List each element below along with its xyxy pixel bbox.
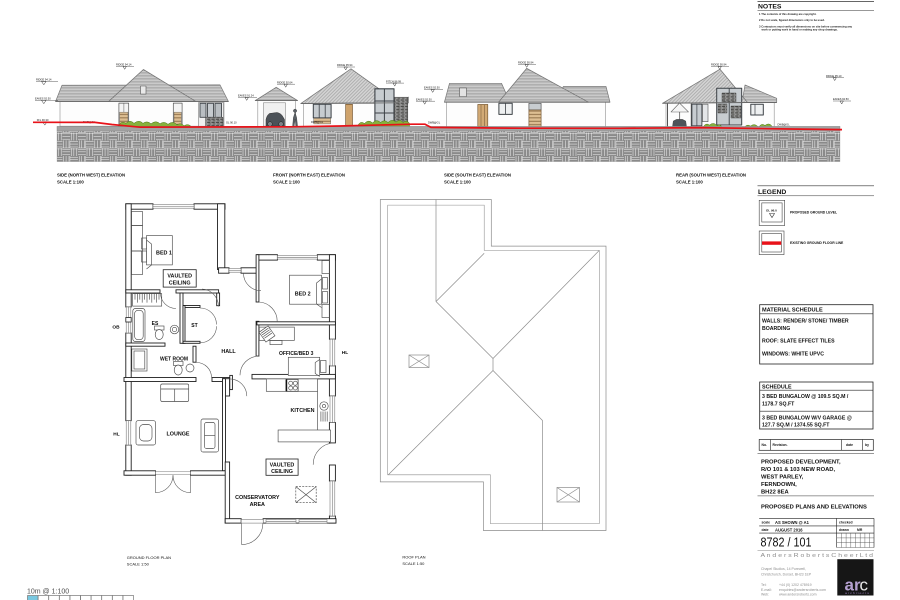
svg-text:KITCHEN: KITCHEN	[291, 408, 315, 414]
svg-text:GROUND FLOOR PLAN: GROUND FLOOR PLAN	[127, 555, 171, 560]
svg-text:DWB@GL: DWB@GL	[778, 122, 791, 126]
svg-text:WEST PARLEY,: WEST PARLEY,	[761, 475, 804, 481]
svg-text:2 Do not scale, figured dimens: 2 Do not scale, figured dimensions only …	[759, 18, 825, 22]
svg-text:3 BED BUNGALOW @ 109.5 SQ.M /: 3 BED BUNGALOW @ 109.5 SQ.M /	[762, 394, 849, 400]
svg-text:ROOF PLAN: ROOF PLAN	[402, 555, 425, 560]
svg-text:SCALE 1:100: SCALE 1:100	[676, 180, 703, 185]
svg-text:OB: OB	[112, 325, 120, 331]
svg-text:EAVES 92.50: EAVES 92.50	[833, 97, 849, 101]
svg-text:EXISTING GROUND FLOOR LINE: EXISTING GROUND FLOOR LINE	[790, 241, 844, 245]
svg-text:CEILING: CEILING	[169, 281, 191, 287]
svg-text:+44 (0) 1202 478919: +44 (0) 1202 478919	[779, 583, 812, 587]
svg-text:AUGUST 2016: AUGUST 2016	[775, 528, 803, 533]
svg-text:RIDGE 95.10: RIDGE 95.10	[826, 74, 842, 78]
svg-text:www.andersroberts.com: www.andersroberts.com	[779, 593, 817, 597]
svg-text:FERNDOWN,: FERNDOWN,	[761, 482, 797, 488]
svg-text:BED 1: BED 1	[156, 250, 172, 256]
svg-text:BH22 8EA: BH22 8EA	[761, 490, 790, 496]
svg-text:work or putting work in hand o: work or putting work in hand or making a…	[761, 28, 839, 32]
svg-text:SCALE 1:100: SCALE 1:100	[273, 180, 300, 185]
svg-text:GL 96.0: GL 96.0	[766, 209, 777, 213]
svg-text:Revision.: Revision.	[773, 443, 788, 447]
svg-text:SIDE (NORTH WEST) ELEVATION: SIDE (NORTH WEST) ELEVATION	[57, 173, 125, 178]
svg-text:Web:: Web:	[761, 593, 769, 597]
svg-text:FRONT (NORTH EAST) ELEVATION: FRONT (NORTH EAST) ELEVATION	[273, 173, 345, 178]
svg-text:RIDGE 94.14: RIDGE 94.14	[36, 78, 52, 82]
svg-text:VAULTED: VAULTED	[167, 274, 192, 280]
svg-text:Tel:: Tel:	[761, 583, 766, 587]
svg-text:No.: No.	[762, 443, 768, 447]
svg-text:LOUNGE: LOUNGE	[166, 432, 189, 438]
svg-text:BED 2: BED 2	[295, 291, 311, 297]
svg-text:PROPOSED GROUND LEVEL: PROPOSED GROUND LEVEL	[790, 210, 837, 214]
svg-text:BOARDING: BOARDING	[762, 326, 790, 332]
svg-text:VAULTED: VAULTED	[270, 462, 295, 468]
svg-text:ES: ES	[152, 321, 159, 327]
svg-text:SCALE 1:50: SCALE 1:50	[402, 561, 425, 566]
svg-text:DWB@GL: DWB@GL	[428, 120, 441, 124]
svg-text:LEGEND: LEGEND	[758, 189, 786, 196]
svg-text:1 The contents of this drawing: 1 The contents of this drawing are copyr…	[759, 12, 817, 16]
svg-text:WALLS: RENDER/ STONE/ TIMBER: WALLS: RENDER/ STONE/ TIMBER	[762, 319, 849, 325]
svg-text:AREA: AREA	[250, 502, 265, 508]
svg-text:E-mail:: E-mail:	[761, 588, 772, 592]
svg-text:RIDGE 95.94: RIDGE 95.94	[518, 61, 534, 65]
svg-text:EAVES 92.50: EAVES 92.50	[35, 97, 51, 101]
svg-text:ST: ST	[191, 323, 197, 329]
svg-text:OFFICE/BED 3: OFFICE/BED 3	[279, 351, 314, 357]
svg-text:GL 90.10: GL 90.10	[226, 121, 237, 125]
svg-text:DWB@GL: DWB@GL	[311, 120, 324, 124]
svg-text:FFL 90.30: FFL 90.30	[37, 118, 49, 122]
svg-text:Chapel Studios, 14 Purewell,: Chapel Studios, 14 Purewell,	[761, 567, 806, 571]
svg-text:Christchurch, Dorset, BH23 1EP: Christchurch, Dorset, BH23 1EP	[761, 573, 812, 577]
svg-text:10m @ 1:100: 10m @ 1:100	[27, 589, 69, 596]
svg-text:SIDE (SOUTH EAST) ELEVATION: SIDE (SOUTH EAST) ELEVATION	[444, 173, 511, 178]
svg-text:HL: HL	[342, 350, 348, 356]
svg-text:MATERIAL SCHEDULE: MATERIAL SCHEDULE	[762, 308, 823, 314]
svg-text:enquiries@andersroberts.com: enquiries@andersroberts.com	[779, 588, 826, 592]
svg-text:1178.7 SQ.FT: 1178.7 SQ.FT	[762, 401, 795, 407]
svg-text:EAVES 92.50: EAVES 92.50	[416, 97, 432, 101]
svg-text:127.7 SQ.M / 1374.55 SQ.FT: 127.7 SQ.M / 1374.55 SQ.FT	[762, 423, 830, 429]
svg-text:8782 / 101: 8782 / 101	[761, 534, 812, 549]
svg-text:by: by	[865, 443, 869, 447]
svg-text:SCALE 1:100: SCALE 1:100	[444, 180, 471, 185]
svg-text:3 BED BUNGALOW W/V GARAGE @: 3 BED BUNGALOW W/V GARAGE @	[762, 415, 852, 421]
svg-text:EAVES 92.50: EAVES 92.50	[424, 86, 440, 90]
svg-text:SCALE 1:100: SCALE 1:100	[57, 180, 84, 185]
svg-text:scale: scale	[762, 521, 771, 525]
svg-text:AS SHOWN @ A1: AS SHOWN @ A1	[775, 520, 810, 525]
svg-text:RIDGE 94.14: RIDGE 94.14	[116, 63, 132, 67]
svg-text:RIDGE 95.94: RIDGE 95.94	[337, 63, 353, 67]
svg-text:RIDGE 95.94: RIDGE 95.94	[711, 63, 727, 67]
svg-text:R/O 101 & 103 NEW ROAD,: R/O 101 & 103 NEW ROAD,	[761, 467, 835, 473]
svg-text:date: date	[846, 443, 853, 447]
svg-text:A n d e r s R o b e r t s: A n d e r s R o b e r t s C h e e r L t …	[761, 553, 874, 559]
svg-text:WINDOWS: WHITE UPVC: WINDOWS: WHITE UPVC	[762, 352, 824, 358]
svg-text:REAR (SOUTH WEST) ELEVATION: REAR (SOUTH WEST) ELEVATION	[676, 173, 746, 178]
svg-text:date: date	[762, 528, 769, 532]
svg-text:a r c h i t e c t s: a r c h i t e c t s	[845, 591, 870, 595]
svg-text:drawn: drawn	[839, 528, 849, 532]
svg-text:RIDGE 92.64: RIDGE 92.64	[277, 80, 293, 84]
svg-text:ROOF: SLATE EFFECT TILES: ROOF: SLATE EFFECT TILES	[762, 339, 835, 345]
svg-text:PROPOSED DEVELOPMENT,: PROPOSED DEVELOPMENT,	[761, 460, 841, 466]
svg-text:NOTES: NOTES	[758, 4, 782, 11]
svg-text:CEILING: CEILING	[271, 469, 293, 475]
svg-text:checked: checked	[839, 521, 853, 525]
svg-text:PITCH 96.99: PITCH 96.99	[386, 79, 402, 83]
svg-text:HALL: HALL	[221, 349, 236, 355]
svg-text:HL: HL	[113, 432, 119, 438]
svg-text:MR: MR	[857, 528, 863, 532]
svg-text:EAVES 91.24: EAVES 91.24	[238, 94, 254, 98]
svg-text:SCHEDULE: SCHEDULE	[762, 384, 792, 390]
svg-text:SCALE 1:50: SCALE 1:50	[127, 561, 150, 566]
svg-text:PROPOSED PLANS AND ELEVATIONS: PROPOSED PLANS AND ELEVATIONS	[761, 505, 867, 511]
svg-text:CONSERVATORY: CONSERVATORY	[235, 495, 280, 501]
svg-text:WET ROOM: WET ROOM	[160, 356, 188, 362]
